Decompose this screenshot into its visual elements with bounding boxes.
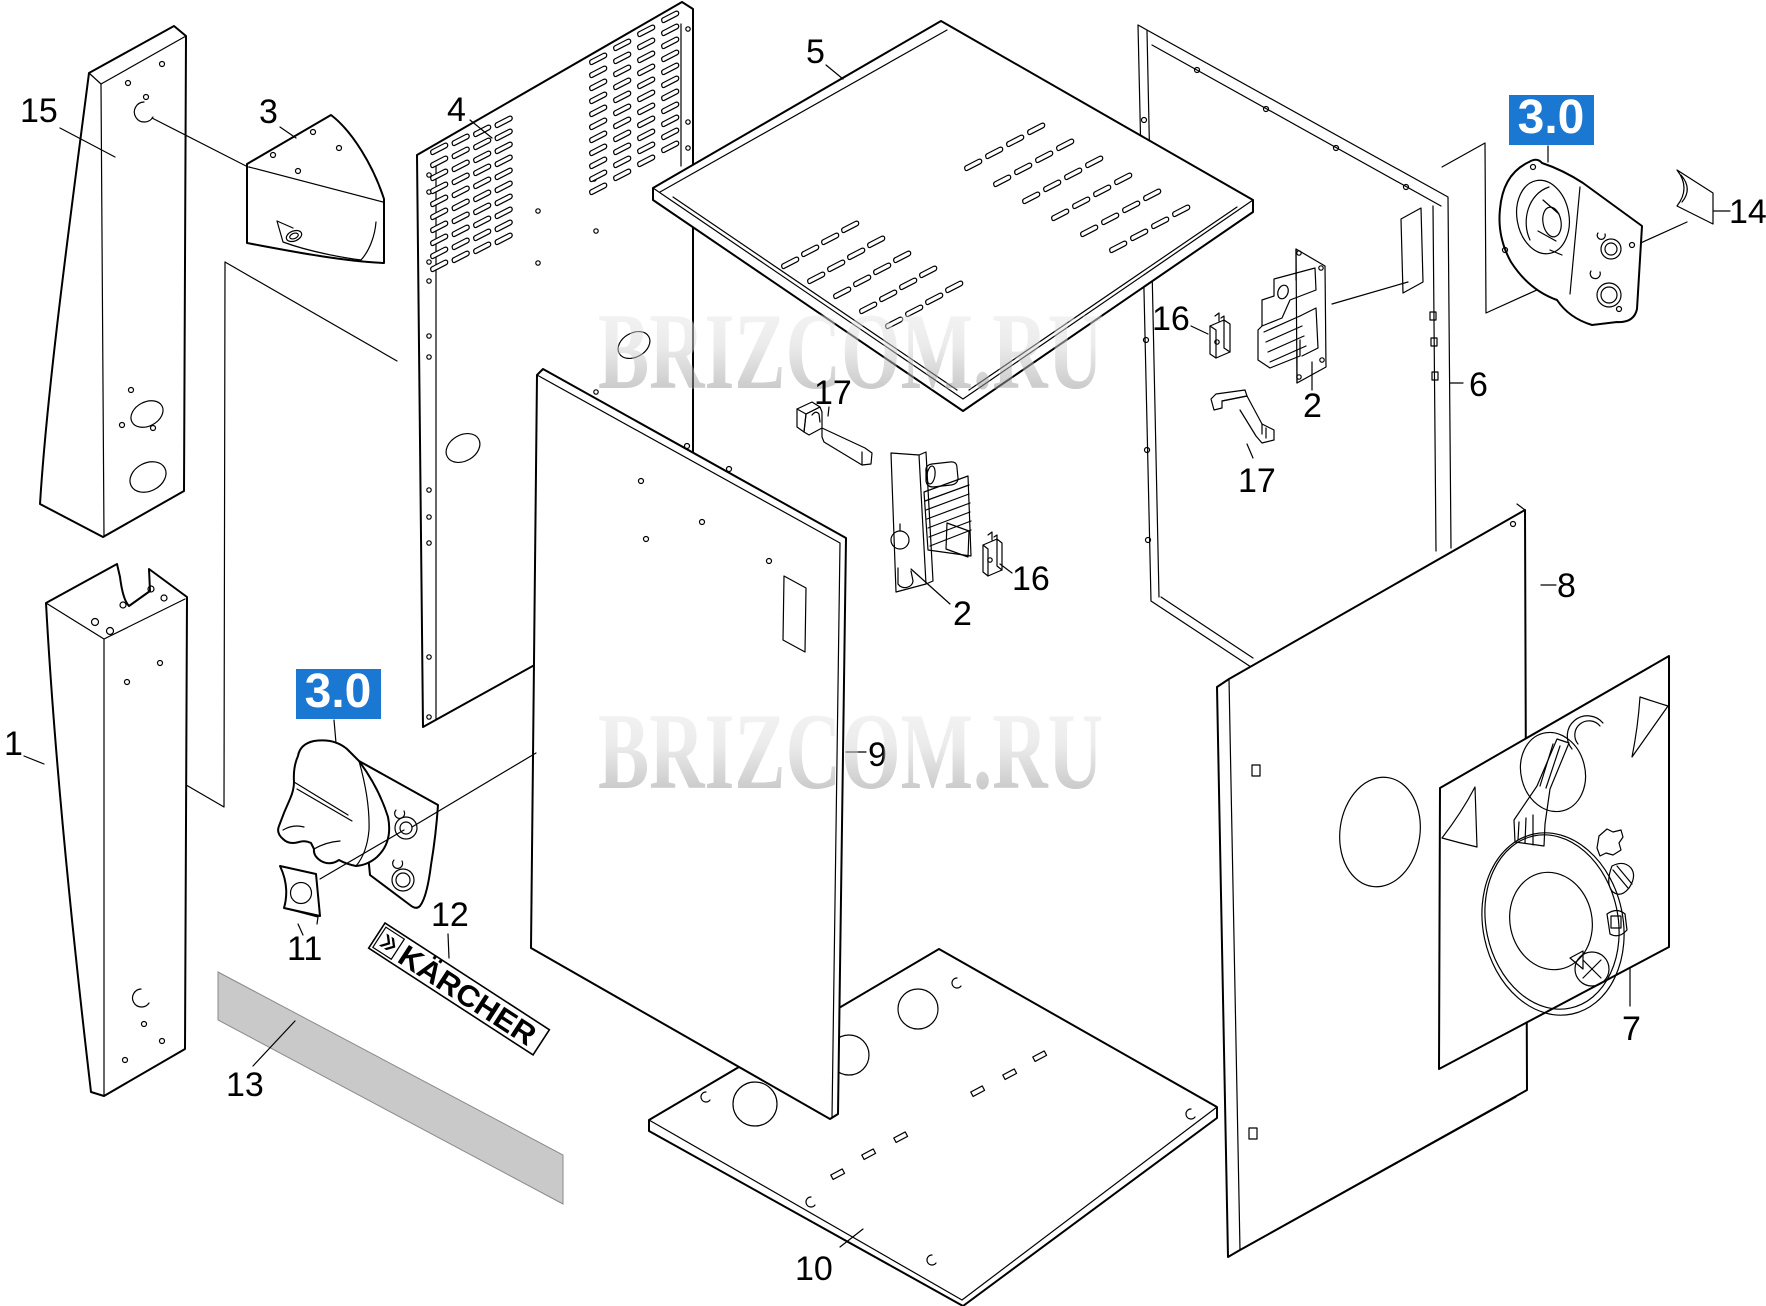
svg-text:5: 5 bbox=[806, 33, 825, 71]
svg-text:2: 2 bbox=[1303, 387, 1322, 425]
svg-text:4: 4 bbox=[447, 91, 466, 129]
svg-text:14: 14 bbox=[1729, 193, 1766, 231]
svg-text:BRIZCOM.RU: BRIZCOM.RU bbox=[598, 692, 1103, 813]
svg-text:6: 6 bbox=[1469, 366, 1488, 404]
svg-text:12: 12 bbox=[431, 896, 469, 934]
svg-text:8: 8 bbox=[1557, 567, 1576, 605]
svg-text:13: 13 bbox=[226, 1066, 264, 1104]
svg-text:15: 15 bbox=[20, 92, 58, 130]
svg-text:17: 17 bbox=[814, 374, 852, 412]
svg-text:1: 1 bbox=[4, 725, 23, 763]
svg-text:2: 2 bbox=[953, 595, 972, 633]
svg-text:3.0: 3.0 bbox=[305, 665, 372, 718]
svg-text:11: 11 bbox=[287, 930, 322, 968]
svg-text:3: 3 bbox=[259, 93, 278, 131]
svg-text:16: 16 bbox=[1012, 560, 1050, 598]
svg-text:7: 7 bbox=[1622, 1010, 1641, 1048]
svg-text:3.0: 3.0 bbox=[1518, 91, 1585, 144]
svg-text:17: 17 bbox=[1238, 462, 1276, 500]
svg-text:16: 16 bbox=[1152, 300, 1190, 338]
svg-text:10: 10 bbox=[795, 1250, 833, 1288]
